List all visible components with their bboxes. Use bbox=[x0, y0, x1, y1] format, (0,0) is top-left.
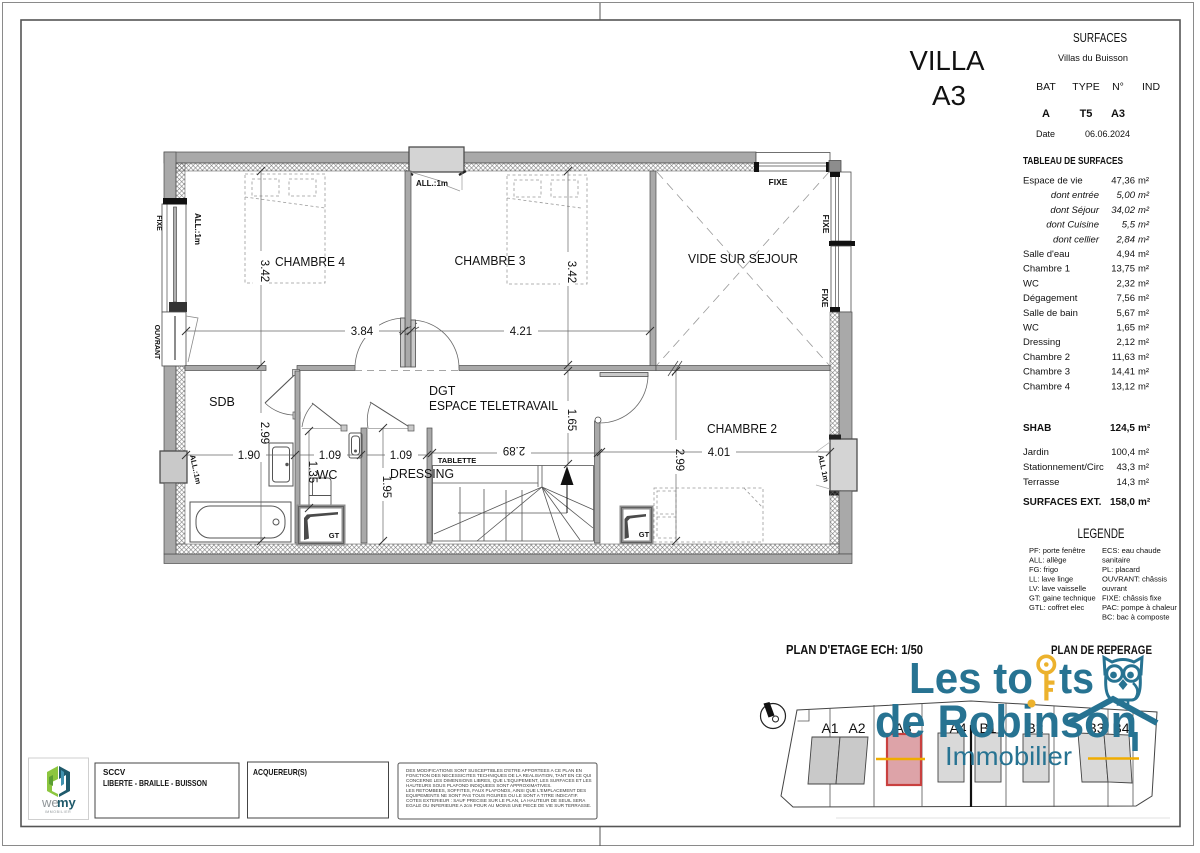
svg-text:Dégagement: Dégagement bbox=[1023, 293, 1078, 304]
svg-text:ALL.:1m: ALL.:1m bbox=[193, 213, 202, 245]
svg-text:14,3: 14,3 bbox=[1117, 477, 1136, 488]
svg-text:dont cellier: dont cellier bbox=[1053, 234, 1100, 245]
svg-text:m²: m² bbox=[1138, 176, 1149, 187]
svg-text:m²: m² bbox=[1138, 381, 1149, 392]
svg-text:Salle de bain: Salle de bain bbox=[1023, 308, 1078, 319]
svg-text:ALL: allège: ALL: allège bbox=[1029, 556, 1067, 565]
svg-text:158,0: 158,0 bbox=[1110, 497, 1135, 508]
svg-text:Immobilier: Immobilier bbox=[945, 741, 1072, 771]
svg-text:5,5: 5,5 bbox=[1122, 220, 1136, 231]
svg-text:CHAMBRE 3: CHAMBRE 3 bbox=[455, 254, 526, 268]
svg-text:Terrasse: Terrasse bbox=[1023, 477, 1059, 488]
svg-text:SHAB: SHAB bbox=[1023, 423, 1051, 434]
svg-text:Salle d'eau: Salle d'eau bbox=[1023, 249, 1070, 260]
svg-text:FIXE: châssis fixe: FIXE: châssis fixe bbox=[1102, 594, 1162, 603]
svg-text:m²: m² bbox=[1138, 308, 1149, 319]
svg-text:CHAMBRE 4: CHAMBRE 4 bbox=[275, 255, 345, 269]
svg-text:GT: GT bbox=[639, 530, 650, 539]
svg-text:PL: placard: PL: placard bbox=[1102, 565, 1140, 574]
svg-text:SCCV: SCCV bbox=[103, 768, 126, 777]
svg-text:IND: IND bbox=[1142, 81, 1161, 93]
svg-text:1.09: 1.09 bbox=[390, 450, 412, 462]
svg-text:GTL: coffret elec: GTL: coffret elec bbox=[1029, 603, 1085, 612]
svg-text:m²: m² bbox=[1138, 278, 1149, 289]
svg-text:Date: Date bbox=[1036, 129, 1055, 139]
svg-text:LL: lave linge: LL: lave linge bbox=[1029, 575, 1073, 584]
svg-text:47,36: 47,36 bbox=[1111, 176, 1135, 187]
svg-text:ouvrant: ouvrant bbox=[1102, 584, 1128, 593]
svg-text:13,12: 13,12 bbox=[1111, 381, 1135, 392]
svg-text:sanitaire: sanitaire bbox=[1102, 556, 1130, 565]
svg-text:DRESSING: DRESSING bbox=[390, 467, 454, 481]
svg-text:m²: m² bbox=[1138, 367, 1149, 378]
svg-text:m²: m² bbox=[1138, 205, 1150, 216]
svg-text:m²: m² bbox=[1138, 477, 1149, 488]
svg-text:WC: WC bbox=[1023, 278, 1039, 289]
svg-text:Stationnement/Circ: Stationnement/Circ bbox=[1023, 462, 1104, 473]
svg-text:5,00: 5,00 bbox=[1117, 190, 1136, 201]
svg-text:2,84: 2,84 bbox=[1116, 234, 1136, 245]
svg-text:ESPACE TELETRAVAIL: ESPACE TELETRAVAIL bbox=[429, 399, 558, 413]
svg-text:T5: T5 bbox=[1080, 108, 1093, 120]
svg-text:A1: A1 bbox=[821, 720, 838, 736]
svg-text:SURFACES EXT.: SURFACES EXT. bbox=[1023, 497, 1102, 508]
svg-text:1.65: 1.65 bbox=[565, 409, 577, 431]
svg-text:Dressing: Dressing bbox=[1023, 337, 1061, 348]
svg-text:1.09: 1.09 bbox=[319, 450, 341, 462]
svg-text:124,5: 124,5 bbox=[1110, 423, 1135, 434]
svg-text:34,02: 34,02 bbox=[1111, 205, 1135, 216]
svg-text:4,94: 4,94 bbox=[1117, 249, 1136, 260]
svg-text:2,12: 2,12 bbox=[1117, 337, 1136, 348]
svg-text:4.01: 4.01 bbox=[708, 447, 730, 459]
svg-text:dont entrée: dont entrée bbox=[1051, 190, 1099, 201]
svg-text:Chambre 4: Chambre 4 bbox=[1023, 381, 1070, 392]
svg-text:Villas du Buisson: Villas du Buisson bbox=[1058, 53, 1128, 64]
svg-text:BAT: BAT bbox=[1036, 81, 1056, 93]
svg-text:1.90: 1.90 bbox=[238, 450, 260, 462]
svg-text:we: we bbox=[41, 795, 59, 810]
svg-text:m²: m² bbox=[1138, 423, 1151, 434]
svg-text:A3: A3 bbox=[932, 80, 966, 111]
svg-text:TYPE: TYPE bbox=[1072, 81, 1099, 93]
svg-text:EGALE OU INFERIEURE A 2cm POUR: EGALE OU INFERIEURE A 2cm POUR AU MOINS … bbox=[406, 803, 591, 808]
svg-text:IMMOBILIER: IMMOBILIER bbox=[45, 810, 72, 814]
svg-text:1,65: 1,65 bbox=[1117, 323, 1136, 334]
svg-text:4.21: 4.21 bbox=[510, 326, 532, 338]
svg-text:FIXE: FIXE bbox=[821, 215, 831, 234]
svg-text:13,75: 13,75 bbox=[1111, 264, 1135, 275]
svg-text:VIDE SUR SEJOUR: VIDE SUR SEJOUR bbox=[688, 252, 798, 266]
svg-text:FIXE: FIXE bbox=[820, 289, 830, 308]
svg-text:ACQUEREUR(S): ACQUEREUR(S) bbox=[253, 767, 307, 777]
svg-text:DGT: DGT bbox=[429, 384, 456, 398]
svg-text:my: my bbox=[57, 795, 77, 810]
svg-text:Jardin: Jardin bbox=[1023, 447, 1049, 458]
svg-text:SDB: SDB bbox=[209, 395, 235, 409]
svg-text:100,4: 100,4 bbox=[1111, 447, 1135, 458]
svg-text:LIBERTE - BRAILLE - BUISSON: LIBERTE - BRAILLE - BUISSON bbox=[103, 779, 207, 788]
svg-text:5,67: 5,67 bbox=[1117, 308, 1136, 319]
svg-text:06.06.2024: 06.06.2024 bbox=[1085, 129, 1130, 139]
svg-text:dont Cuisine: dont Cuisine bbox=[1046, 220, 1099, 231]
svg-text:Chambre 3: Chambre 3 bbox=[1023, 367, 1070, 378]
svg-text:BC: bac à composte: BC: bac à composte bbox=[1102, 613, 1170, 622]
svg-text:m²: m² bbox=[1138, 190, 1150, 201]
svg-text:A: A bbox=[1042, 108, 1050, 120]
svg-text:m²: m² bbox=[1138, 293, 1149, 304]
svg-text:Chambre 2: Chambre 2 bbox=[1023, 352, 1070, 363]
svg-text:m²: m² bbox=[1138, 323, 1149, 334]
svg-text:2,32: 2,32 bbox=[1117, 278, 1136, 289]
svg-text:11,63: 11,63 bbox=[1112, 352, 1135, 363]
svg-text:ALL.:1m: ALL.:1m bbox=[416, 179, 448, 188]
svg-text:PAC: pompe à chaleur: PAC: pompe à chaleur bbox=[1102, 603, 1177, 612]
svg-text:3.84: 3.84 bbox=[351, 326, 374, 338]
svg-text:FIXE: FIXE bbox=[155, 215, 162, 231]
svg-text:7,56: 7,56 bbox=[1117, 293, 1136, 304]
svg-text:3.42: 3.42 bbox=[258, 260, 270, 282]
svg-text:2.99: 2.99 bbox=[258, 422, 270, 444]
svg-text:LV: lave vaisselle: LV: lave vaisselle bbox=[1029, 584, 1086, 593]
svg-text:m²: m² bbox=[1138, 352, 1149, 363]
svg-text:14,41: 14,41 bbox=[1111, 367, 1135, 378]
svg-text:3.42: 3.42 bbox=[565, 261, 577, 283]
svg-text:FIXE: FIXE bbox=[769, 177, 788, 187]
svg-text:PLAN D'ETAGE ECH: 1/50: PLAN D'ETAGE ECH: 1/50 bbox=[786, 643, 923, 657]
svg-text:TABLEAU DE SURFACES: TABLEAU DE SURFACES bbox=[1023, 155, 1123, 167]
svg-text:m²: m² bbox=[1138, 497, 1151, 508]
svg-text:m²: m² bbox=[1138, 234, 1150, 245]
svg-text:PF: porte fenêtre: PF: porte fenêtre bbox=[1029, 546, 1085, 555]
svg-text:GT: gaine technique: GT: gaine technique bbox=[1029, 594, 1096, 603]
svg-text:de Robinson: de Robinson bbox=[875, 696, 1137, 747]
svg-text:VILLA: VILLA bbox=[910, 45, 985, 76]
svg-text:43,3: 43,3 bbox=[1117, 462, 1136, 473]
svg-text:WC: WC bbox=[1023, 323, 1039, 334]
svg-text:m²: m² bbox=[1138, 220, 1150, 231]
svg-text:dont Séjour: dont Séjour bbox=[1050, 205, 1099, 216]
svg-text:Espace de vie: Espace de vie bbox=[1023, 176, 1083, 187]
svg-text:FG: frigo: FG: frigo bbox=[1029, 565, 1058, 574]
svg-text:CHAMBRE 2: CHAMBRE 2 bbox=[707, 422, 777, 436]
svg-text:m²: m² bbox=[1138, 264, 1149, 275]
svg-text:A2: A2 bbox=[848, 720, 865, 736]
svg-text:m²: m² bbox=[1138, 462, 1149, 473]
svg-text:m²: m² bbox=[1138, 249, 1149, 260]
svg-text:2.89: 2.89 bbox=[503, 444, 525, 456]
svg-text:TABLETTE: TABLETTE bbox=[438, 456, 477, 465]
svg-text:LEGENDE: LEGENDE bbox=[1078, 526, 1125, 541]
svg-text:WC: WC bbox=[317, 468, 338, 482]
svg-text:N°: N° bbox=[1112, 81, 1124, 93]
svg-text:m²: m² bbox=[1138, 337, 1149, 348]
svg-text:SURFACES: SURFACES bbox=[1073, 30, 1127, 45]
svg-text:ECS: eau chaude: ECS: eau chaude bbox=[1102, 546, 1161, 555]
svg-text:m²: m² bbox=[1138, 447, 1149, 458]
svg-text:Chambre 1: Chambre 1 bbox=[1023, 264, 1070, 275]
svg-text:A3: A3 bbox=[1111, 108, 1125, 120]
svg-text:GT: GT bbox=[329, 531, 340, 540]
svg-text:OUVRANT: OUVRANT bbox=[153, 325, 160, 360]
svg-text:OUVRANT: châssis: OUVRANT: châssis bbox=[1102, 575, 1167, 584]
